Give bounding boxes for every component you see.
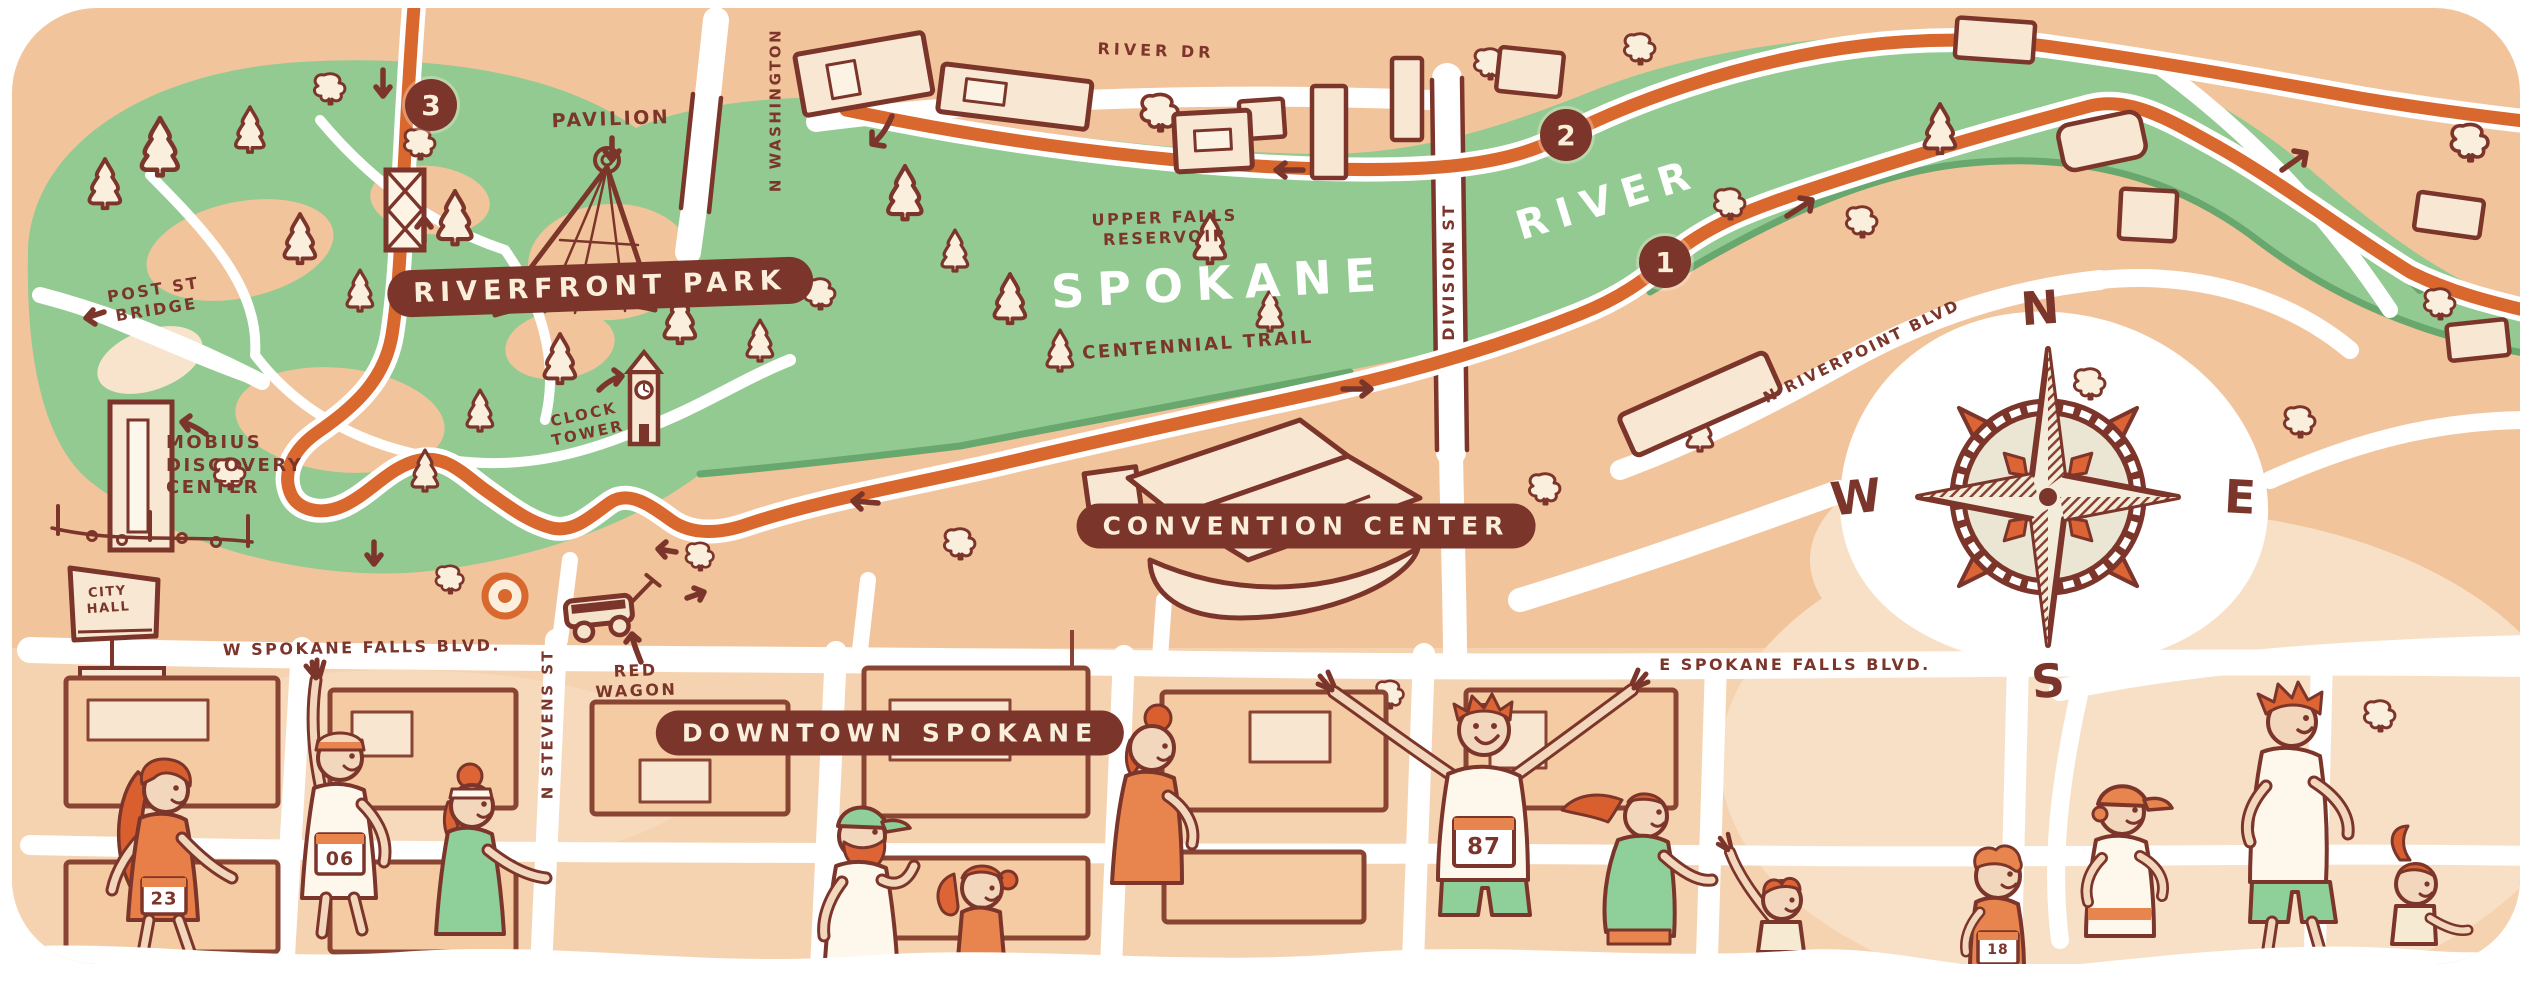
upper-falls-reservoir-label: UPPER FALLS RESERVOIR: [1091, 205, 1238, 250]
bib-number-23: 23: [150, 889, 177, 910]
route-marker-1: 1: [1639, 236, 1691, 288]
downtown-spokane-banner: DOWNTOWN SPOKANE: [656, 711, 1124, 756]
street-river-dr: RIVER DR: [1097, 39, 1215, 63]
mobius-discovery-center-label: MOBIUS DISCOVERY CENTER: [166, 432, 303, 500]
compass-east-label: E: [2223, 469, 2257, 525]
street-n-washington: N WASHINGTON: [767, 28, 786, 192]
street-division-st: DIVISION ST: [1439, 203, 1459, 341]
spokane-race-map: RIVERFRONT PARK CONVENTION CENTER DOWNTO…: [0, 0, 2532, 990]
pavilion-label: PAVILION: [551, 106, 670, 134]
clock-tower-building: [628, 352, 660, 444]
bib-number-06: 06: [326, 848, 354, 870]
compass-west-label: W: [1828, 467, 1884, 526]
route-marker-3: 3: [405, 79, 457, 131]
mobius-building: [110, 402, 172, 550]
street-e-spokane-falls-blvd: E SPOKANE FALLS BLVD.: [1659, 655, 1930, 675]
bib-number-87: 87: [1467, 834, 1501, 860]
red-wagon-label: RED WAGON: [594, 660, 677, 703]
convention-center-banner: CONVENTION CENTER: [1077, 504, 1536, 549]
bib-number-18: 18: [1987, 942, 2008, 958]
compass-north-label: N: [2019, 280, 2061, 337]
carousel-icon: [485, 576, 525, 616]
compass-south-label: S: [2029, 653, 2067, 710]
street-n-stevens-st: N STEVENS ST: [539, 649, 558, 800]
map-illustration: [0, 0, 2532, 990]
route-marker-2: 2: [1540, 109, 1592, 161]
lattice-bridge: [386, 170, 424, 250]
city-hall-label: CITY HALL: [85, 583, 131, 618]
